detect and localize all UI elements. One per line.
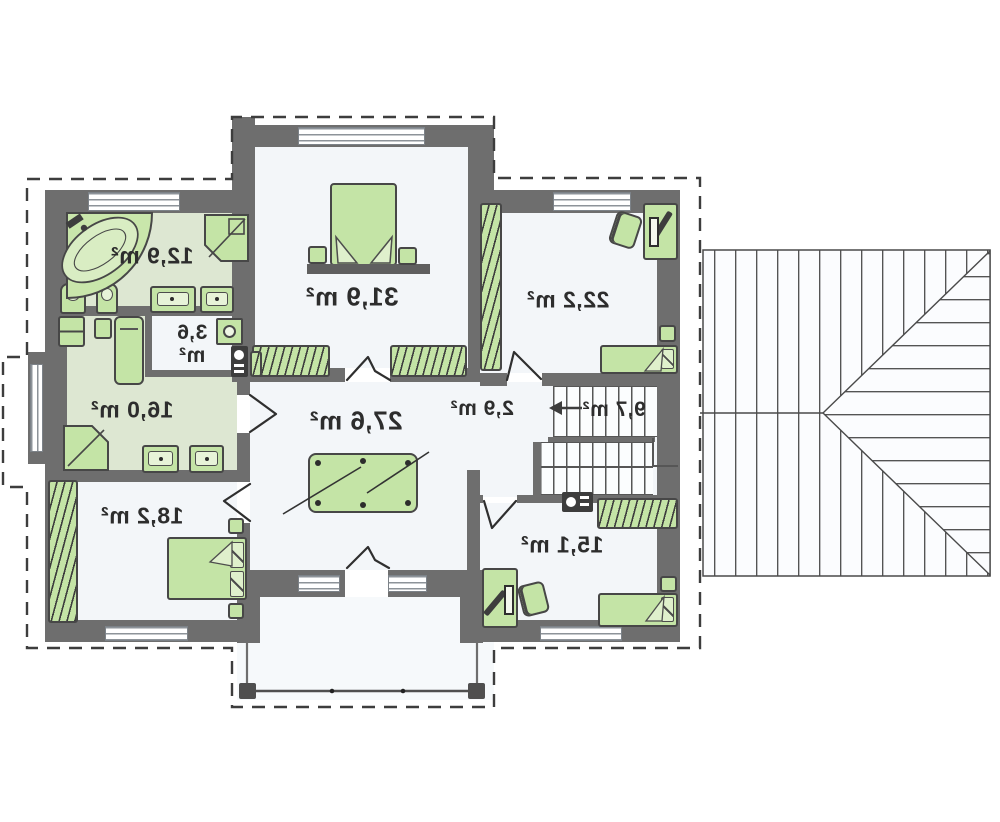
room-area-label-bedroom-bottom-right: 15,1 m² [521, 532, 604, 559]
pillow [230, 542, 244, 568]
roof-vertical-hatch [703, 250, 990, 576]
window [298, 575, 340, 592]
desk [482, 568, 518, 628]
bidet [96, 283, 118, 314]
room-area-label-bedroom-top-right: 22,2 m² [527, 287, 610, 314]
sink-drain [159, 457, 163, 461]
room-area-label-bathroom: 12,9 m² [111, 243, 194, 270]
side-table [94, 318, 112, 339]
desk [643, 203, 678, 260]
bed-headboard [307, 264, 430, 274]
bed-double [167, 537, 247, 600]
sink [142, 445, 179, 473]
sink-drain [170, 297, 174, 301]
window [388, 575, 427, 592]
wall-stair-side [533, 442, 541, 495]
wall [237, 433, 250, 470]
sink-drain [215, 297, 219, 301]
sink [189, 445, 224, 473]
nightstand [228, 603, 244, 619]
lounger-pillow-line [120, 328, 138, 330]
wardrobe [597, 498, 678, 529]
radiator [250, 351, 262, 377]
wall-stair-rail [548, 437, 655, 442]
pillow [661, 349, 674, 369]
window [553, 192, 631, 211]
chimney-vent-slot [234, 370, 244, 373]
lounger [114, 316, 144, 385]
roof-outline [703, 250, 990, 576]
billiard-pocket [360, 502, 366, 508]
nightstand [660, 576, 677, 592]
nightstand [228, 518, 244, 534]
window [540, 626, 622, 641]
bench [58, 316, 85, 347]
pillow [230, 571, 244, 597]
billiard-pocket [315, 500, 321, 506]
chimney-flue [566, 497, 576, 507]
floor-balcony [237, 597, 494, 700]
wall [468, 190, 480, 382]
bidet-bowl [101, 288, 113, 301]
billiard-table [308, 453, 418, 513]
nightstand [398, 247, 417, 265]
nightstand [308, 246, 327, 264]
room-area-label-bedroom-master: 31,9 m² [305, 282, 398, 313]
window [105, 626, 188, 641]
billiard-pocket [405, 500, 411, 506]
stairs-handrail-line [540, 466, 653, 468]
room-area-label-bedroom-bottom-left: 18,2 m² [101, 503, 184, 530]
billiard-pocket [315, 460, 321, 466]
chimney-vent-slot [234, 364, 244, 367]
roof [700, 250, 990, 576]
room-area-label-wellness: 16,0 m² [91, 397, 174, 424]
room-area-label-billiard: 27,6 m² [309, 406, 402, 437]
sink [150, 286, 196, 313]
bed-single [600, 345, 678, 374]
wardrobe [480, 203, 502, 371]
wall-laundry [145, 370, 244, 377]
sink [200, 286, 234, 313]
wall-laundry [145, 316, 152, 377]
wardrobe [48, 480, 78, 623]
pillow [661, 597, 674, 622]
toilet [60, 283, 86, 314]
room-area-label-corridor: 2,9 m² [450, 397, 514, 421]
wardrobe [390, 345, 467, 377]
wall [542, 373, 680, 386]
washer-drum [223, 325, 236, 338]
sink-drain [205, 457, 209, 461]
stairs-lower-flight [540, 442, 653, 495]
chimney-vent-slot [580, 503, 589, 506]
bed-single [598, 593, 678, 627]
window [88, 192, 180, 211]
floor-plan-canvas: 12,9 m² 31,9 m² 22,2 m² 3,6 m² 16,0 m² 2… [0, 0, 1000, 822]
window [298, 127, 425, 145]
monitor-icon [649, 217, 659, 247]
monitor-icon [504, 585, 514, 615]
wardrobe [252, 345, 330, 377]
billiard-pocket [405, 460, 411, 466]
window [30, 364, 43, 452]
toilet-bowl [66, 288, 80, 301]
chimney-vent-slot [580, 496, 589, 499]
chimney-shaft [562, 492, 593, 512]
chimney-shaft [231, 346, 248, 377]
billiard-pocket [360, 458, 366, 464]
chimney-flue [234, 350, 244, 360]
wall [467, 470, 480, 643]
nightstand [659, 325, 676, 342]
roof-horizontal-hatch [823, 251, 990, 575]
room-area-label-stair-hall: 9,7 m² [582, 398, 646, 422]
roof-gable-triangle [823, 251, 990, 575]
bed-double [330, 183, 397, 266]
wall [480, 373, 507, 386]
room-area-label-laundry: 3,6 m² [163, 321, 221, 367]
